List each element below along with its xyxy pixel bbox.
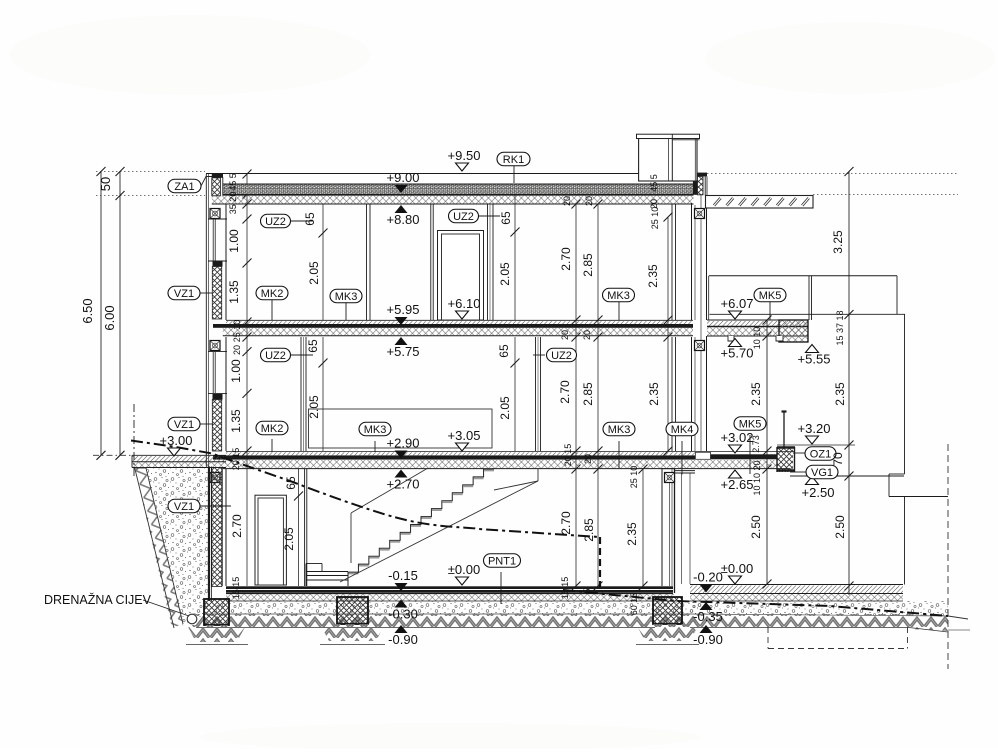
svg-text:15 15: 15 15	[560, 577, 570, 600]
svg-text:PNT1: PNT1	[488, 555, 516, 567]
svg-text:UZ2: UZ2	[453, 211, 474, 223]
svg-text:±0.00: ±0.00	[721, 561, 753, 576]
svg-text:MK3: MK3	[607, 290, 630, 302]
svg-text:2.35: 2.35	[749, 382, 763, 406]
svg-text:2.35: 2.35	[646, 264, 660, 288]
svg-text:+2.65: +2.65	[721, 477, 754, 492]
svg-text:VZ1: VZ1	[174, 419, 194, 431]
svg-text:VZ1: VZ1	[174, 501, 194, 513]
svg-text:2.73: 2.73	[751, 435, 761, 453]
svg-text:2.70: 2.70	[559, 511, 573, 535]
svg-text:2.05: 2.05	[282, 527, 296, 551]
svg-text:+3.05: +3.05	[448, 428, 481, 443]
svg-text:+8.80: +8.80	[387, 212, 420, 227]
svg-text:2.35: 2.35	[647, 382, 661, 406]
svg-text:+5.55: +5.55	[798, 352, 831, 367]
svg-text:2.05: 2.05	[498, 396, 512, 420]
svg-text:25 10: 25 10	[232, 320, 242, 343]
svg-text:20 15: 20 15	[231, 448, 241, 471]
svg-text:65: 65	[306, 339, 320, 353]
svg-text:2.70: 2.70	[559, 247, 573, 271]
svg-text:15 15: 15 15	[231, 577, 241, 600]
svg-text:35 20: 35 20	[228, 192, 238, 215]
svg-text:OZ1: OZ1	[810, 448, 831, 460]
svg-text:2.85: 2.85	[582, 518, 596, 542]
svg-text:RK1: RK1	[503, 154, 524, 166]
svg-text:1.35: 1.35	[229, 409, 243, 433]
svg-text:2.05: 2.05	[307, 395, 321, 419]
svg-text:-0.15: -0.15	[388, 568, 418, 583]
svg-text:MK2: MK2	[261, 288, 284, 300]
svg-text:2.70: 2.70	[230, 514, 244, 538]
svg-text:2.05: 2.05	[498, 262, 512, 286]
svg-text:1.00: 1.00	[229, 359, 243, 383]
svg-text:70: 70	[831, 452, 845, 466]
svg-text:1.00: 1.00	[227, 229, 241, 253]
svg-text:2.50: 2.50	[749, 515, 763, 539]
svg-text:65: 65	[303, 212, 317, 226]
svg-text:-0.90: -0.90	[388, 632, 418, 647]
svg-text:6.00: 6.00	[102, 305, 117, 330]
svg-text:UZ2: UZ2	[265, 350, 286, 362]
svg-text:DRENAŽNA CIJEV: DRENAŽNA CIJEV	[44, 592, 152, 607]
svg-text:2.70: 2.70	[558, 380, 572, 404]
svg-text:65: 65	[499, 211, 513, 225]
svg-text:10 10: 10 10	[752, 327, 762, 350]
svg-text:3.25: 3.25	[831, 230, 845, 254]
svg-text:MK4: MK4	[671, 424, 694, 436]
svg-text:65: 65	[497, 344, 511, 358]
svg-text:20: 20	[583, 454, 593, 464]
svg-text:MK5: MK5	[739, 418, 762, 430]
svg-text:2.05: 2.05	[307, 261, 321, 285]
svg-text:VZ1: VZ1	[174, 288, 194, 300]
svg-text:UZ2: UZ2	[265, 216, 286, 228]
svg-text:UZ2: UZ2	[551, 350, 572, 362]
svg-text:+5.75: +5.75	[387, 344, 420, 359]
svg-text:2.50: 2.50	[833, 515, 847, 539]
svg-text:+2.50: +2.50	[802, 485, 835, 500]
svg-text:15 37 18: 15 37 18	[835, 310, 845, 345]
svg-text:-0.30: -0.30	[388, 607, 418, 622]
svg-text:MK3: MK3	[364, 424, 387, 436]
svg-text:+6.10: +6.10	[448, 296, 481, 311]
svg-text:MK3: MK3	[608, 424, 631, 436]
svg-text:10 10 20: 10 10 20	[752, 460, 762, 495]
svg-text:+2.90: +2.90	[387, 436, 420, 451]
svg-text:60 15: 60 15	[629, 593, 639, 616]
svg-text:20: 20	[584, 196, 594, 206]
svg-text:20: 20	[560, 330, 570, 340]
svg-text:-0.90: -0.90	[693, 632, 723, 647]
svg-text:1.35: 1.35	[227, 280, 241, 304]
svg-text:25 10: 25 10	[629, 466, 639, 489]
svg-text:45 5: 45 5	[228, 173, 238, 191]
svg-text:20: 20	[232, 345, 242, 355]
svg-text:+9.00: +9.00	[387, 170, 420, 185]
svg-text:20 15: 20 15	[563, 444, 573, 467]
svg-text:+3.02: +3.02	[721, 430, 754, 445]
svg-text:+3.00: +3.00	[160, 433, 193, 448]
svg-text:-0.20: -0.20	[693, 570, 723, 585]
svg-text:+5.70: +5.70	[721, 346, 754, 361]
svg-text:45 5: 45 5	[649, 174, 659, 192]
svg-text:+9.50: +9.50	[448, 148, 481, 163]
svg-text:6.50: 6.50	[80, 298, 95, 323]
svg-text:-0.35: -0.35	[693, 609, 723, 624]
svg-text:2.85: 2.85	[581, 253, 595, 277]
svg-text:65: 65	[284, 476, 298, 490]
svg-text:2.85: 2.85	[581, 382, 595, 406]
svg-text:+6.07: +6.07	[721, 296, 754, 311]
svg-text:+3.20: +3.20	[798, 421, 831, 436]
svg-text:+2.70: +2.70	[387, 477, 420, 492]
svg-text:20: 20	[582, 330, 592, 340]
svg-text:MK5: MK5	[759, 290, 782, 302]
svg-text:MK2: MK2	[261, 423, 284, 435]
svg-text:+5.95: +5.95	[387, 302, 420, 317]
svg-text:5: 5	[582, 588, 592, 593]
svg-text:50: 50	[98, 177, 113, 191]
svg-text:ZA1: ZA1	[174, 181, 194, 193]
svg-text:20: 20	[562, 196, 572, 206]
svg-text:2.35: 2.35	[833, 382, 847, 406]
svg-text:MK3: MK3	[335, 291, 358, 303]
svg-text:VG1: VG1	[811, 467, 833, 479]
svg-text:2.35: 2.35	[625, 522, 639, 546]
svg-text:25 10: 25 10	[650, 207, 660, 230]
svg-text:±0.00: ±0.00	[448, 562, 480, 577]
